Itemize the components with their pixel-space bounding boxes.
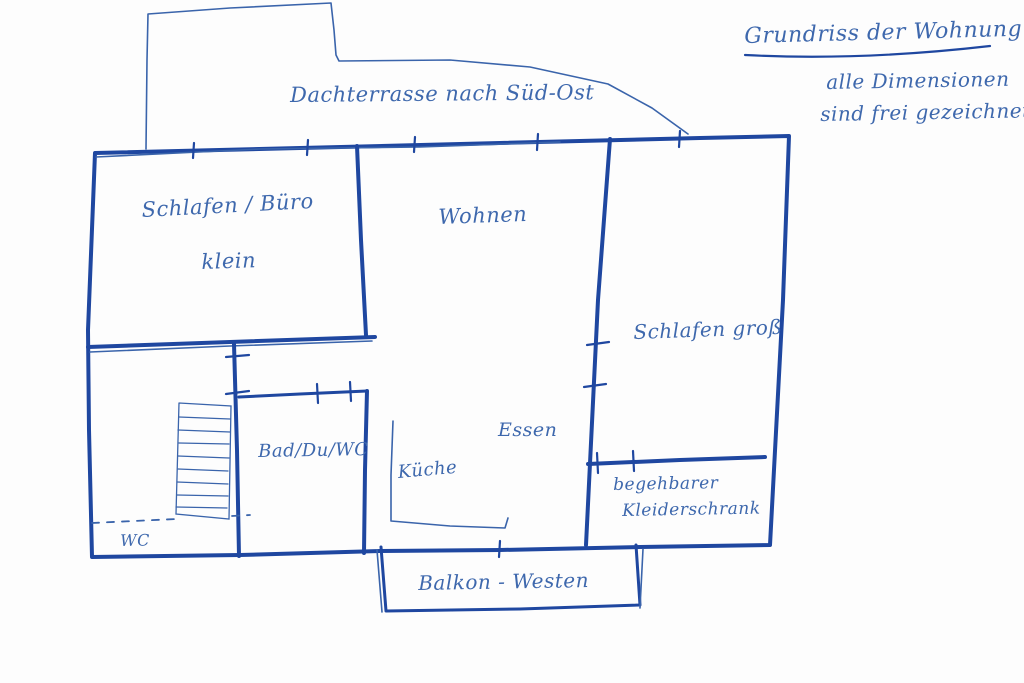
terrace-outline xyxy=(146,3,688,149)
wc-dashed-line-right xyxy=(232,515,250,516)
subtitle-line2: sind frei gezeichnet xyxy=(820,98,1024,126)
label-dining: Essen xyxy=(498,419,557,441)
label-walkin-closet-line2: Kleiderschrank xyxy=(622,499,761,521)
wc-dashed-line xyxy=(92,519,176,523)
label-terrace: Dachterrasse nach Süd-Ost xyxy=(290,80,594,107)
interior-wall-bath-top xyxy=(239,391,367,397)
label-bathroom: Bad/Du/WC xyxy=(258,439,369,462)
label-walkin-closet-line1: begehbarer xyxy=(613,473,719,495)
label-living-room: Wohnen xyxy=(438,202,528,229)
interior-wall-closet-top xyxy=(588,457,765,464)
label-wc: WC xyxy=(120,530,150,550)
interior-wall-hallway xyxy=(234,344,239,556)
subtitle-line1: alle Dimensionen xyxy=(826,67,1010,94)
balcony-overdraw-right xyxy=(640,549,643,608)
stairs-icon xyxy=(176,403,231,519)
interior-wall-bath-right xyxy=(364,391,367,553)
floor-plan-sketch: Grundriss der Wohnung alle Dimensionen s… xyxy=(0,0,1024,683)
label-bedroom-office-size: klein xyxy=(201,248,256,274)
interior-wall-office-right xyxy=(357,146,366,335)
label-balcony: Balkon - Westen xyxy=(418,568,589,595)
